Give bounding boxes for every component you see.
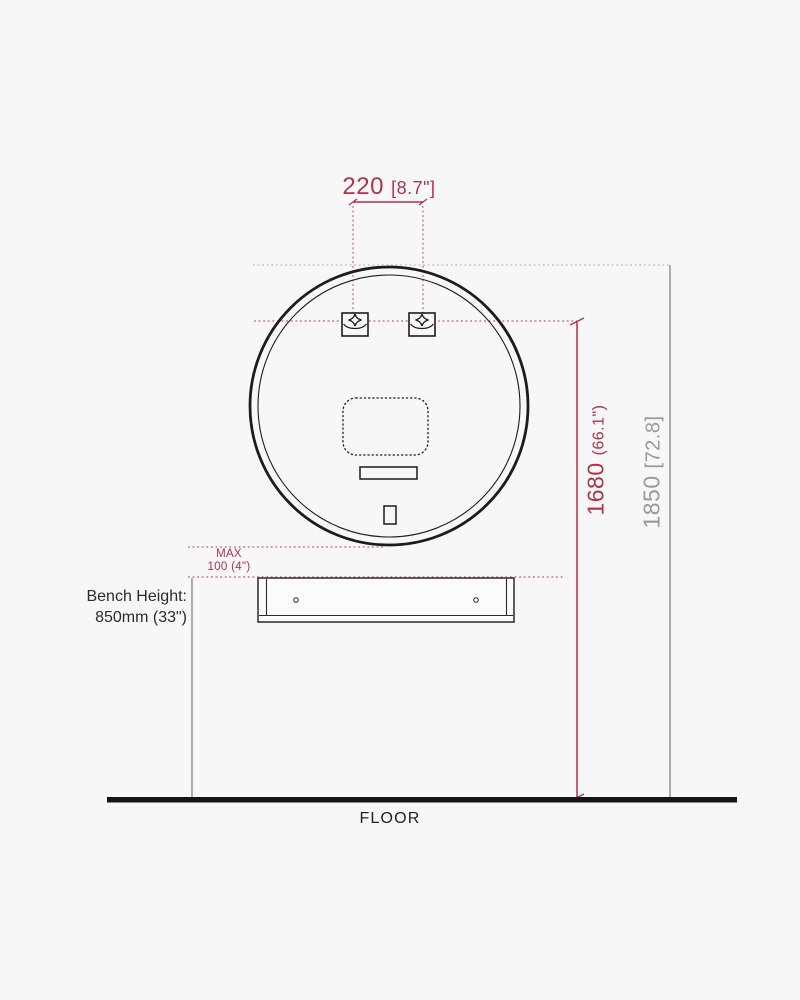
- cable-outlet: [384, 506, 396, 524]
- mirror-inner-frame: [258, 275, 520, 537]
- installation-diagram: 220 [8.7"] 1680 (66.1") 1850 [72.8] MAX …: [0, 0, 800, 1000]
- mounting-bracket-left-icon: [342, 313, 368, 336]
- mirror-bench-gap-label: MAX 100 (4"): [208, 548, 251, 574]
- bracket-height-dimension-label: 1680 (66.1"): [583, 404, 610, 515]
- bracket-height-metric: 1680: [583, 462, 609, 515]
- diagram-linework: [0, 0, 800, 1000]
- bracket-spacing-metric: 220: [342, 173, 384, 200]
- bench: [258, 578, 514, 622]
- bracket-height-imperial: (66.1"): [591, 404, 608, 455]
- bracket-spacing-imperial: [8.7"]: [391, 178, 435, 198]
- mirror-bench-gap-value: 100 (4"): [208, 561, 251, 574]
- overall-height-metric: 1850: [639, 475, 665, 528]
- bench-height-label: Bench Height: 850mm (33"): [86, 586, 187, 628]
- bracket-spacing-dimension-label: 220 [8.7"]: [342, 173, 435, 201]
- mirror-bench-gap-max: MAX: [208, 548, 251, 561]
- bench-height-title: Bench Height:: [86, 586, 187, 607]
- bench-height-value: 850mm (33"): [86, 607, 187, 628]
- overall-height-dimension-label: 1850 [72.8]: [639, 415, 666, 528]
- floor-label: FLOOR: [359, 810, 420, 828]
- mirror-outline: [250, 267, 528, 545]
- overall-height-imperial: [72.8]: [643, 415, 665, 468]
- junction-box: [360, 467, 417, 479]
- floor-line: [107, 797, 737, 803]
- mounting-bracket-right-icon: [409, 313, 435, 336]
- demister-pad-outline: [343, 398, 428, 455]
